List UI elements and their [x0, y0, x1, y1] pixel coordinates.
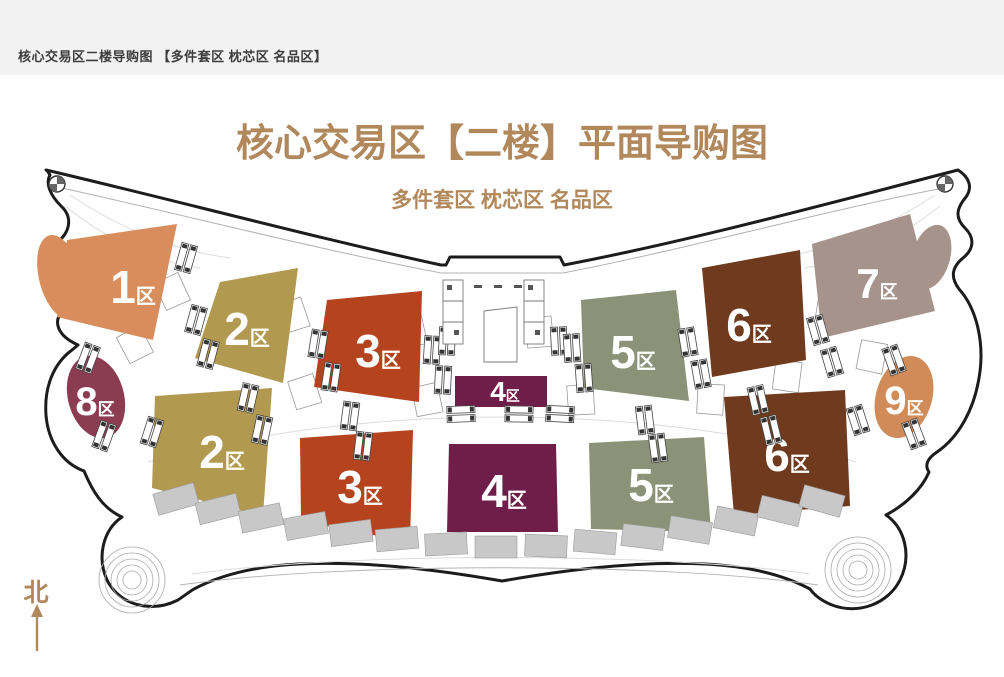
escalator-tread [552, 350, 557, 354]
escalator-tread [448, 350, 453, 354]
escalator-tread [528, 416, 532, 421]
escalator-tread [652, 457, 657, 462]
north-compass: 北 [23, 579, 48, 651]
escalator-tread [321, 331, 327, 336]
stair-icon-left [49, 176, 65, 192]
escalator-tread [354, 454, 359, 459]
escalator-tread [448, 416, 452, 421]
escalator-tread [585, 365, 590, 369]
escalator-tread [448, 407, 452, 412]
escalator-tread [578, 387, 583, 391]
escalator-tread [363, 455, 368, 460]
escalator-tread [353, 403, 358, 408]
escalator-tread [350, 425, 355, 430]
escalator-tread [645, 406, 650, 411]
escalator-tread [528, 407, 532, 412]
zone-4-lower-block[interactable]: 4区 [447, 444, 558, 532]
escalator-tread [439, 350, 444, 354]
escalator-tread [679, 329, 685, 334]
escalator-tread [424, 359, 429, 363]
escalator-tread [692, 362, 698, 367]
shop-unit [375, 526, 419, 552]
escalator-tread [322, 385, 328, 390]
escalator-tread [688, 328, 694, 333]
escalator-tread [576, 365, 581, 369]
escalator-tread [547, 415, 551, 420]
shop-unit [621, 524, 665, 551]
shop-unit [525, 534, 568, 558]
escalator-tread [318, 353, 324, 358]
escalator-tread [366, 433, 371, 438]
escalator-tread [334, 364, 340, 369]
zone-5-upper-block[interactable]: 5区 [581, 290, 689, 401]
escalator-tread [639, 429, 644, 434]
escalator-tread [648, 428, 653, 433]
atrium [484, 307, 517, 362]
zone-3-upper-block[interactable]: 3区 [314, 291, 422, 402]
zone-6-upper-block[interactable]: 6区 [702, 250, 806, 377]
escalator-tread [444, 389, 449, 393]
escalator-tread [566, 357, 571, 361]
escalator-tread [569, 407, 573, 412]
north-label: 北 [23, 579, 48, 607]
escalator-tread [435, 389, 440, 393]
stair-icon-right [937, 176, 953, 192]
escalator-tread [683, 351, 689, 356]
escalator-tread [564, 335, 569, 339]
column-markers [474, 285, 522, 288]
escalator-tread [445, 367, 450, 371]
elevator-bank-right [524, 280, 544, 344]
escalator-tread [344, 402, 349, 407]
escalator-tread [426, 337, 431, 341]
escalator-tread [325, 363, 331, 368]
escalator-tread [309, 352, 315, 357]
escalator-tread [575, 357, 580, 361]
zone-6-upper-area[interactable] [702, 250, 806, 377]
escalator-tread [341, 424, 346, 429]
escalator-tread [357, 432, 362, 437]
escalator-tread [313, 330, 319, 335]
escalator-tread [573, 335, 578, 339]
page-title: 核心交易区【二楼】平面导购图 [236, 122, 768, 165]
escalator-tread [331, 386, 337, 391]
topbar: 核心交易区二楼导购图 【多件套区 枕芯区 名品区】 [0, 0, 1004, 75]
escalator-tread [636, 407, 641, 412]
escalator-tread [691, 350, 697, 355]
escalator-tread [547, 406, 551, 411]
page-subtitle: 多件套区 枕芯区 名品区 [391, 188, 613, 212]
escalator-tread [506, 416, 510, 421]
escalator-tread [705, 382, 711, 387]
escalator-tread [470, 416, 474, 421]
escalator-tread [661, 456, 666, 461]
escalator-tread [551, 328, 556, 332]
escalator-tread [433, 359, 438, 363]
escalator-tread [658, 434, 663, 439]
shop-unit [424, 532, 467, 556]
escalator-tread [701, 360, 707, 365]
escalator-tread [696, 383, 702, 388]
escalator-tread [569, 416, 573, 421]
escalator-tread [436, 367, 441, 371]
zone-4-upper-block[interactable]: 4区 [455, 376, 547, 407]
escalator-tread [506, 407, 510, 412]
escalator-tread [587, 386, 592, 390]
elevator-bank-left [443, 280, 463, 344]
escalator-tread [649, 435, 654, 440]
escalator-tread [560, 328, 565, 332]
shop-unit [573, 529, 617, 555]
topbar-text: 核心交易区二楼导购图 【多件套区 枕芯区 名品区】 [18, 46, 327, 65]
shop-unit [475, 536, 517, 558]
escalator-tread [470, 407, 474, 412]
floorplan: 核心交易区【二楼】平面导购图 多件套区 枕芯区 名品区 1区 2区 2区 3区 … [0, 0, 1004, 677]
